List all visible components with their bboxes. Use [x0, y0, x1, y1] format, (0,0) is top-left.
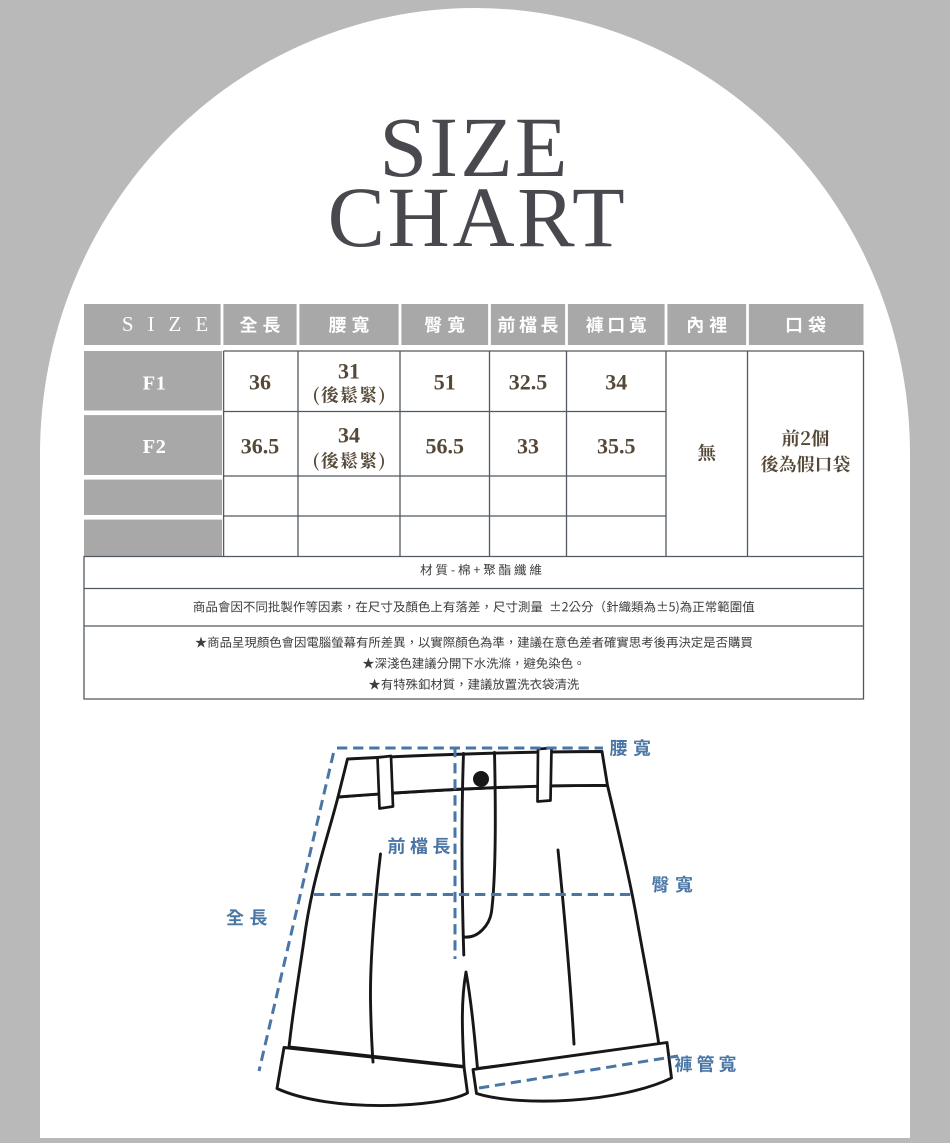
- svg-text:51: 51: [434, 370, 456, 395]
- svg-text:SIZE: SIZE: [122, 312, 222, 336]
- svg-text:34: 34: [605, 370, 627, 395]
- svg-text:32.5: 32.5: [509, 370, 548, 395]
- svg-text:34: 34: [338, 422, 360, 447]
- svg-text:CHART: CHART: [328, 169, 628, 265]
- svg-text:56.5: 56.5: [426, 433, 465, 458]
- svg-text:F2: F2: [143, 436, 167, 458]
- svg-text:33: 33: [517, 433, 539, 458]
- svg-text:35.5: 35.5: [597, 433, 636, 458]
- svg-text:F1: F1: [143, 372, 167, 394]
- svg-text:36.5: 36.5: [241, 433, 280, 458]
- svg-text:36: 36: [249, 370, 271, 395]
- svg-text:31: 31: [338, 359, 360, 384]
